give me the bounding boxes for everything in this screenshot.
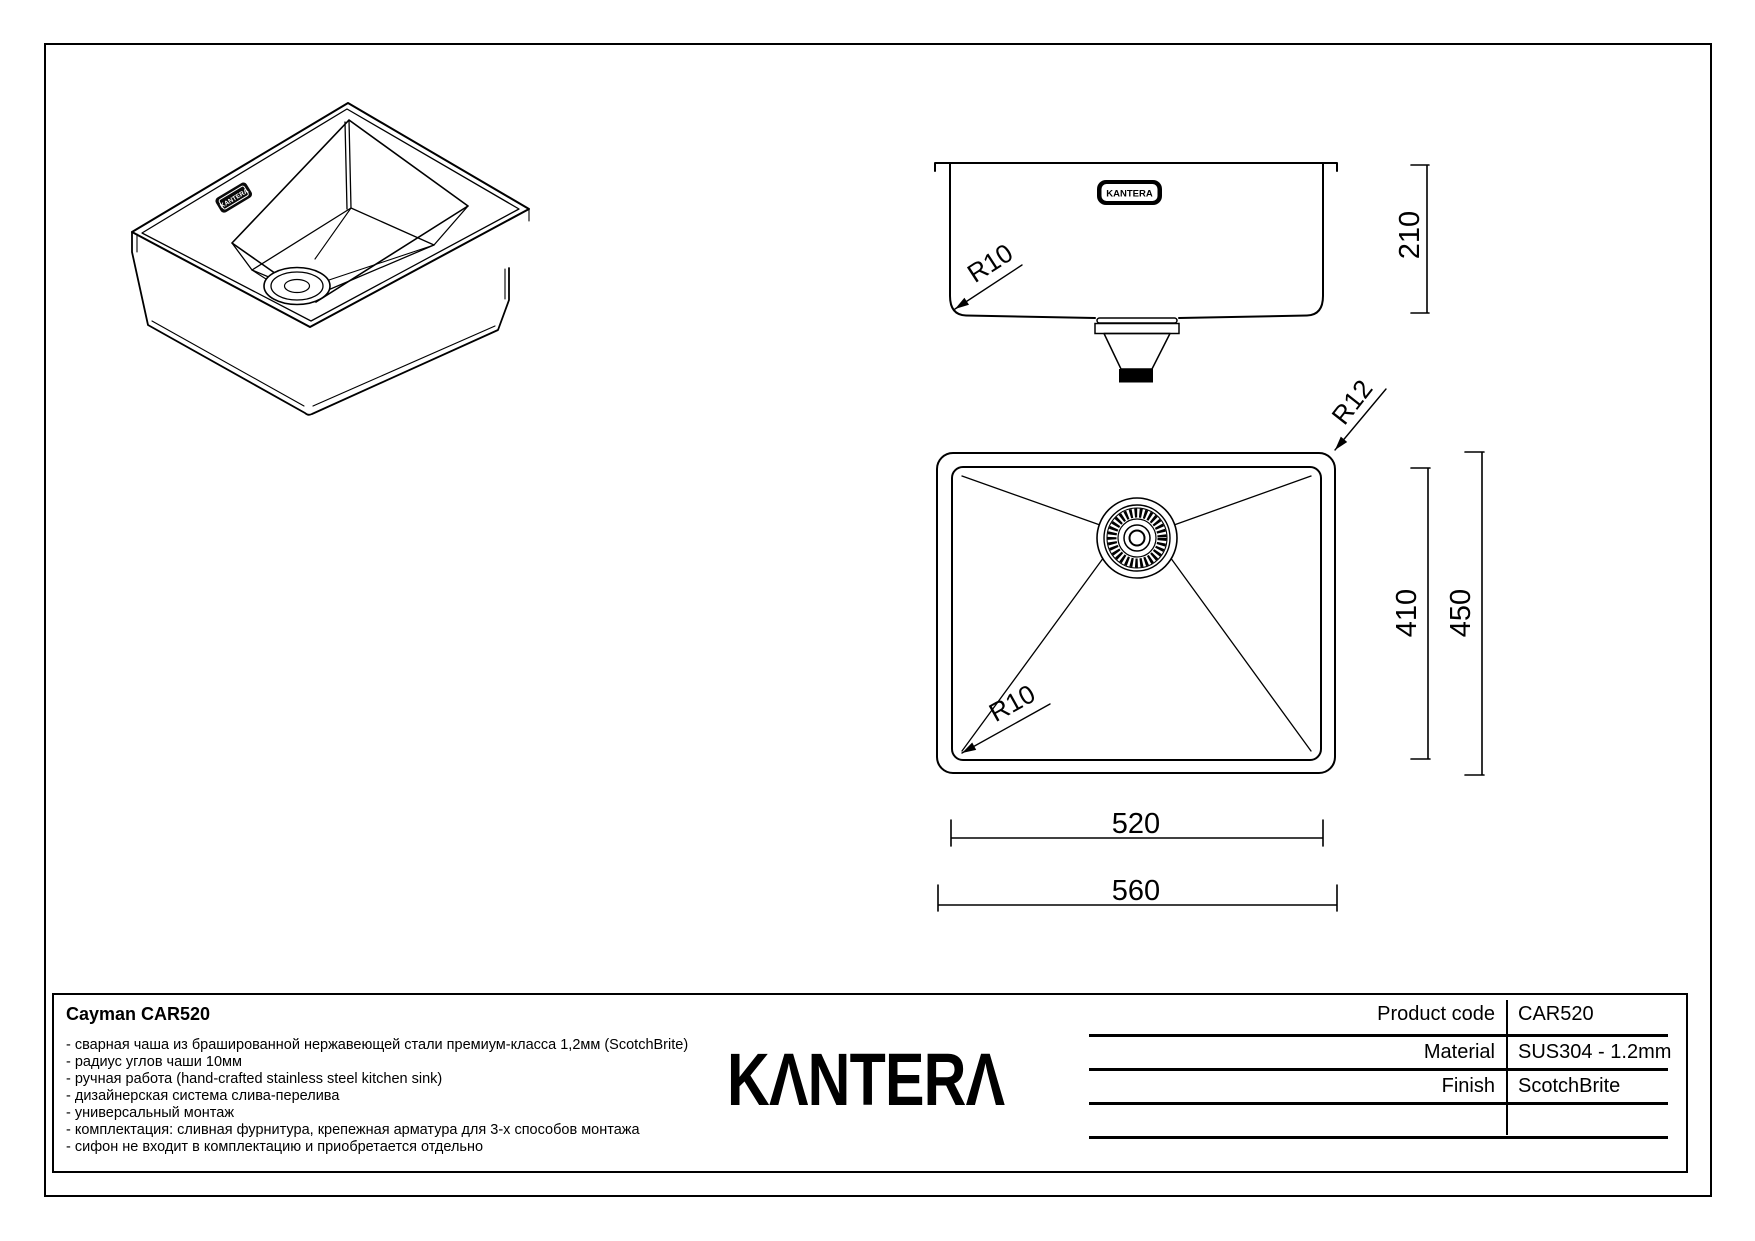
product-title: Cayman CAR520 [66, 1004, 210, 1025]
spec-label-finish: Finish [1255, 1075, 1495, 1097]
front-badge-text: KANTERA [1106, 189, 1153, 200]
front-drain-flange-band [1095, 324, 1179, 334]
feature-item: - дизайнерская система слива-перелива [66, 1088, 688, 1105]
dim-520-text: 520 [1112, 808, 1160, 840]
front-r10-arrowhead [955, 298, 969, 309]
plan-r10-text: R10 [984, 678, 1040, 727]
front-radius-callout: R10 [955, 237, 1022, 309]
drawing-sheet: KANTERA KANTERA 210 [0, 0, 1755, 1241]
front-drain-tailpiece [1119, 369, 1153, 383]
spec-column-divider [1506, 1000, 1508, 1135]
feature-list: - сварная чаша из брашированной нержавею… [66, 1037, 688, 1156]
dim-depth-210: 210 [1394, 165, 1429, 313]
isometric-view: KANTERA [132, 103, 529, 415]
feature-item: - ручная работа (hand-crafted stainless … [66, 1071, 688, 1088]
spec-value-finish: ScotchBrite [1518, 1075, 1693, 1097]
spec-label-product-code: Product code [1255, 1003, 1495, 1025]
dim-overall-length-450: 450 [1445, 452, 1484, 775]
dim-560-text: 560 [1112, 875, 1160, 907]
front-view: KANTERA 210 R10 [935, 163, 1429, 383]
spec-row-divider [1089, 1102, 1668, 1105]
front-brand-badge: KANTERA [1097, 180, 1162, 205]
dim-450-text: 450 [1445, 589, 1477, 637]
front-rim-line [935, 163, 1337, 171]
dim-410-text: 410 [1391, 589, 1423, 637]
front-drain-body [1104, 334, 1170, 370]
dim-bowl-length-410: 410 [1391, 468, 1430, 759]
iso-body-silhouette [132, 232, 509, 415]
plan-r10-callout: R10 [962, 678, 1050, 753]
spec-row-divider [1089, 1034, 1668, 1037]
front-drain-flange-top [1097, 318, 1177, 323]
front-r10-text: R10 [962, 237, 1018, 288]
dim-bowl-width-520: 520 [951, 808, 1323, 846]
plan-drain-strainer [1097, 498, 1177, 578]
brand-logo: KΛNTERΛ [727, 1043, 1004, 1117]
feature-item: - сварная чаша из брашированной нержавею… [66, 1037, 688, 1054]
feature-item: - радиус углов чаши 10мм [66, 1054, 688, 1071]
iso-drain-inner-ellipse [285, 280, 310, 293]
iso-bowl-wall-edges [232, 120, 468, 302]
spec-value-material: SUS304 - 1.2mm [1518, 1041, 1693, 1063]
dim-overall-width-560: 560 [938, 875, 1337, 911]
dim-depth-text: 210 [1394, 211, 1426, 259]
plan-r12-text: R12 [1325, 374, 1378, 430]
iso-body-thickness-lines [137, 209, 529, 406]
plan-r12-callout: R12 [1325, 374, 1386, 450]
spec-row-divider [1089, 1068, 1668, 1071]
spec-label-material: Material [1255, 1041, 1495, 1063]
feature-item: - комплектация: сливная фурнитура, крепе… [66, 1122, 688, 1139]
top-view: R10 R12 410 450 520 560 [937, 374, 1484, 911]
feature-item: - универсальный монтаж [66, 1105, 688, 1122]
spec-row-divider [1089, 1136, 1668, 1139]
spec-value-product-code: CAR520 [1518, 1003, 1693, 1025]
drain-center-hole [1130, 531, 1145, 546]
feature-item: - сифон не входит в комплектацию и приоб… [66, 1139, 688, 1156]
